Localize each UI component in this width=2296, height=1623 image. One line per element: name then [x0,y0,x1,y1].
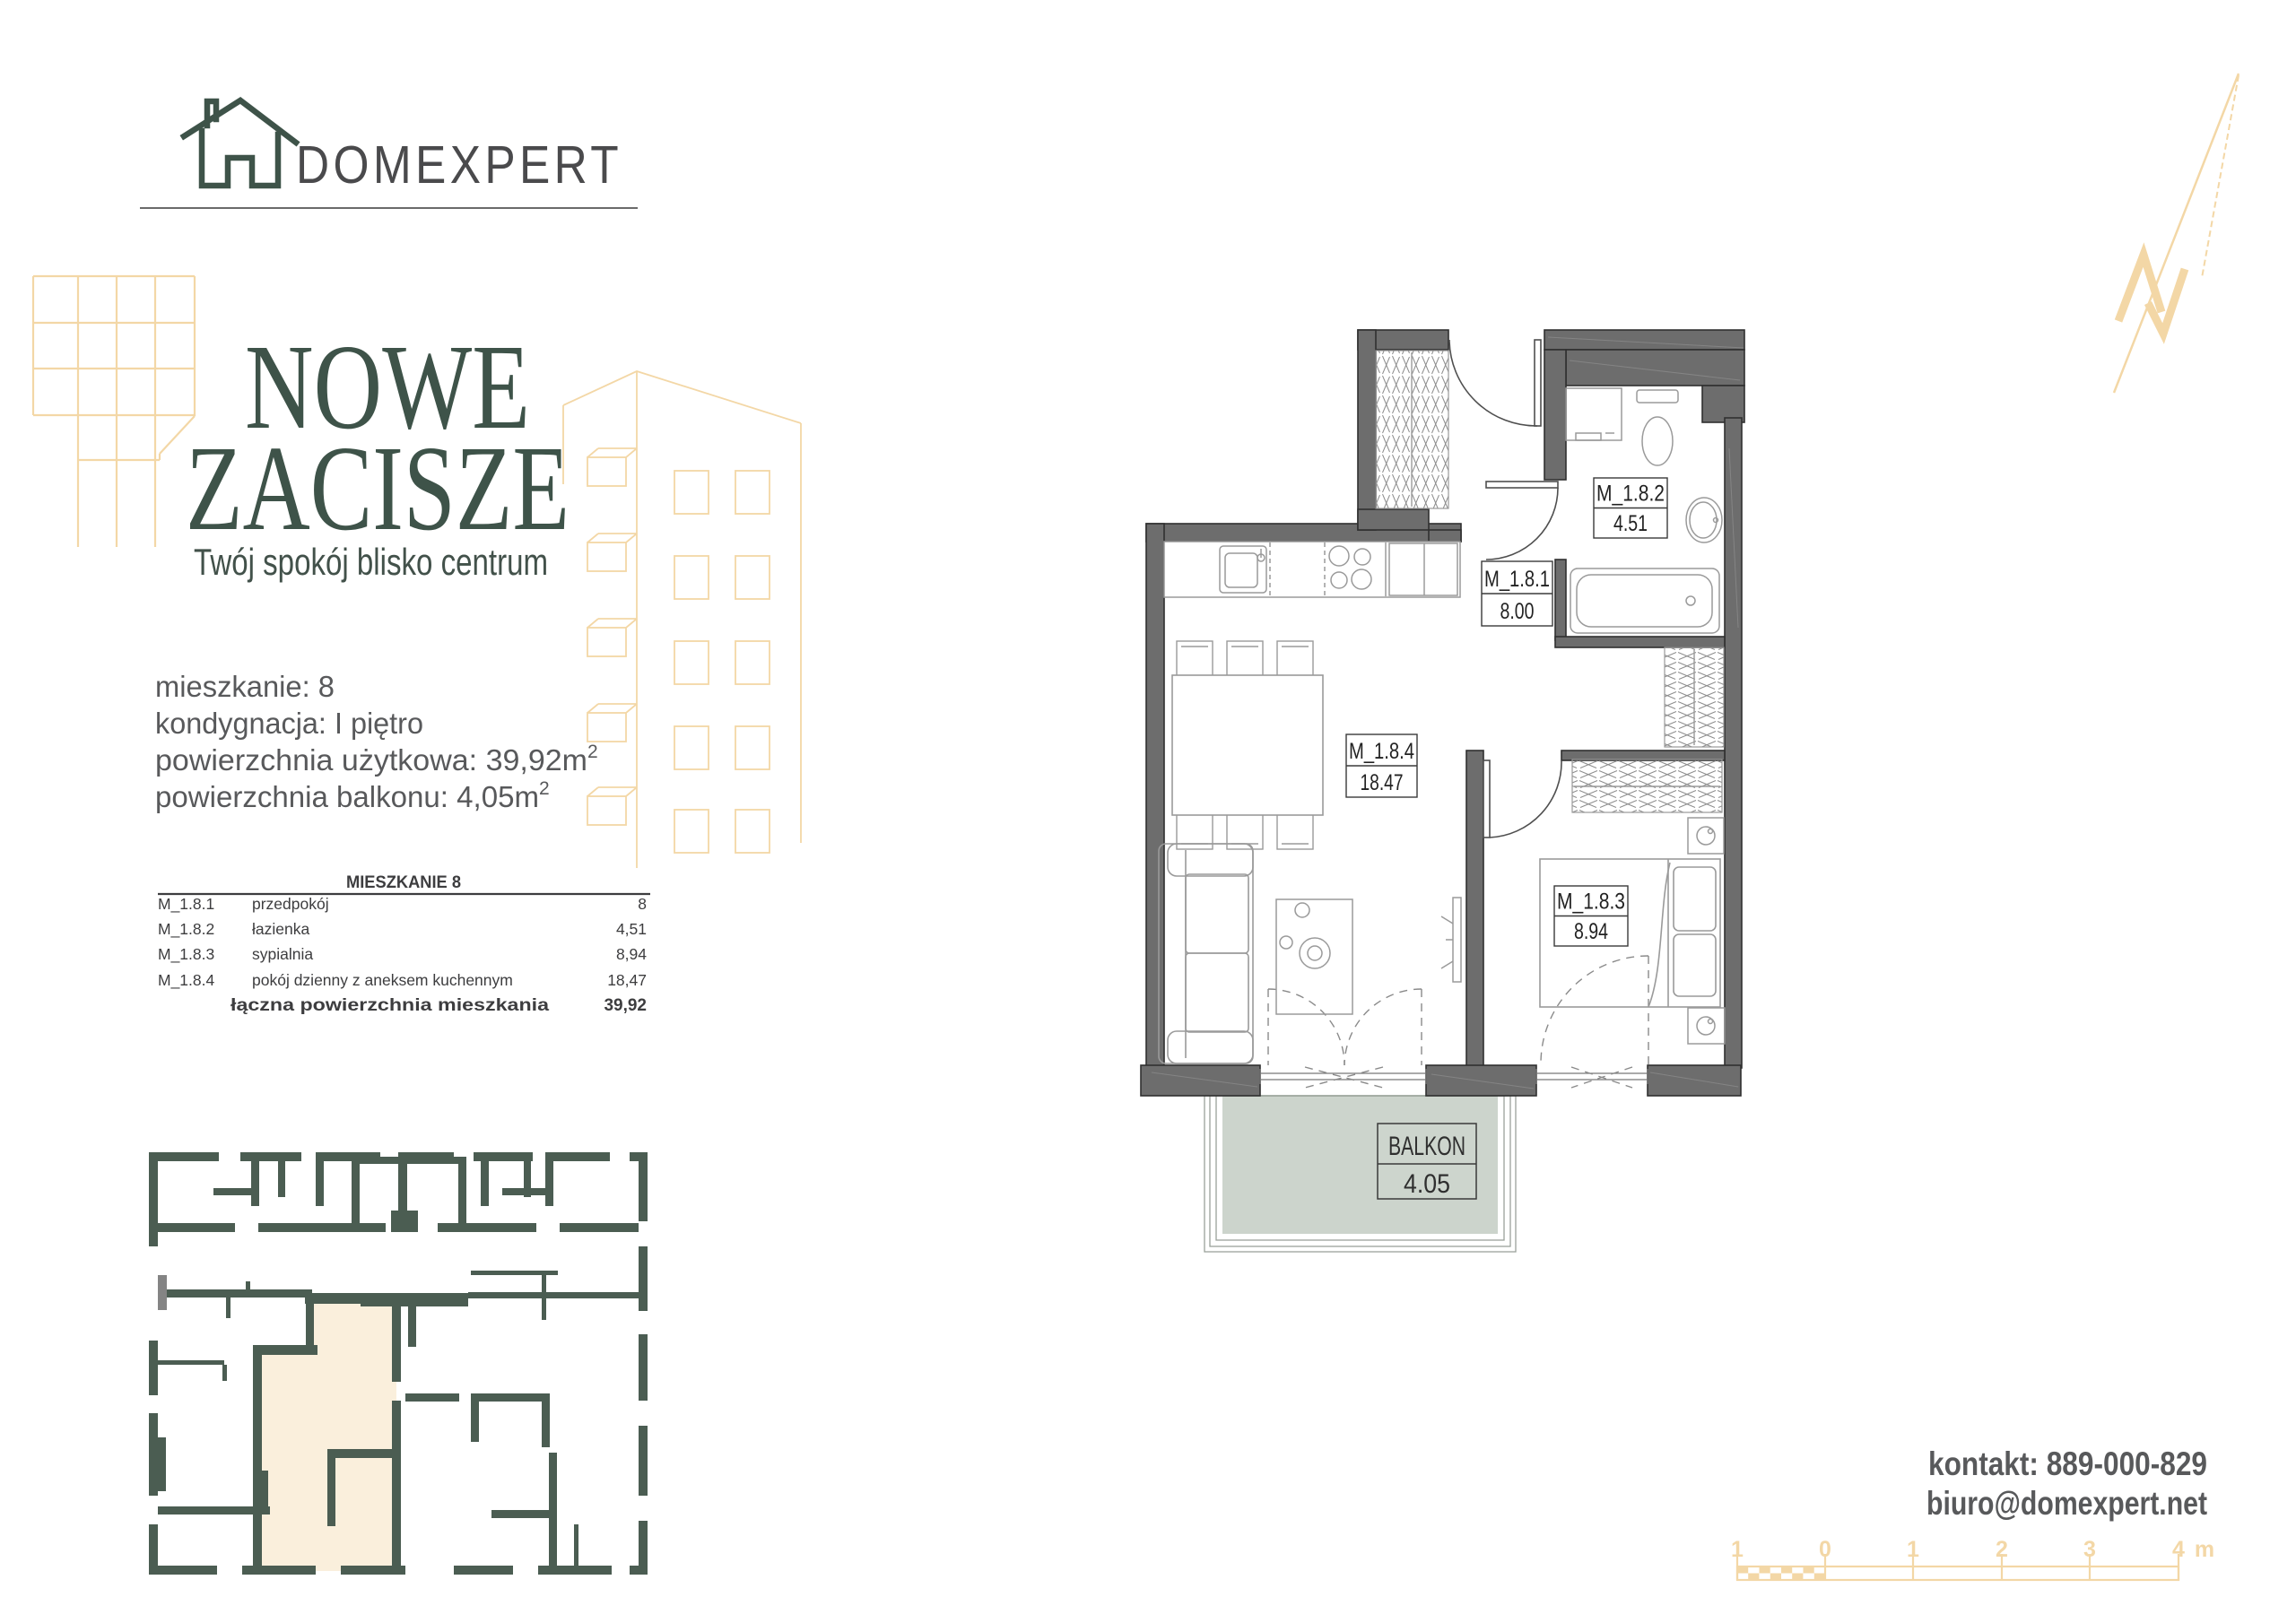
svg-text:M_1.8.1: M_1.8.1 [1484,567,1550,592]
svg-text:M_1.8.3: M_1.8.3 [1557,890,1625,915]
svg-text:kontakt: 889-000-829: kontakt: 889-000-829 [1928,1445,2207,1482]
svg-text:8.00: 8.00 [1500,599,1535,624]
svg-text:biuro@domexpert.net: biuro@domexpert.net [1926,1485,2207,1522]
svg-text:M_1.8.2: M_1.8.2 [1596,482,1665,507]
svg-text:8.94: 8.94 [1574,919,1608,944]
svg-text:18.47: 18.47 [1361,770,1404,795]
svg-text:M_1.8.4: M_1.8.4 [1349,739,1414,764]
svg-text:4.05: 4.05 [1404,1169,1450,1199]
svg-text:4.51: 4.51 [1613,511,1648,536]
svg-text:BALKON: BALKON [1388,1132,1465,1161]
svg-text:m: m [2195,1537,2214,1562]
